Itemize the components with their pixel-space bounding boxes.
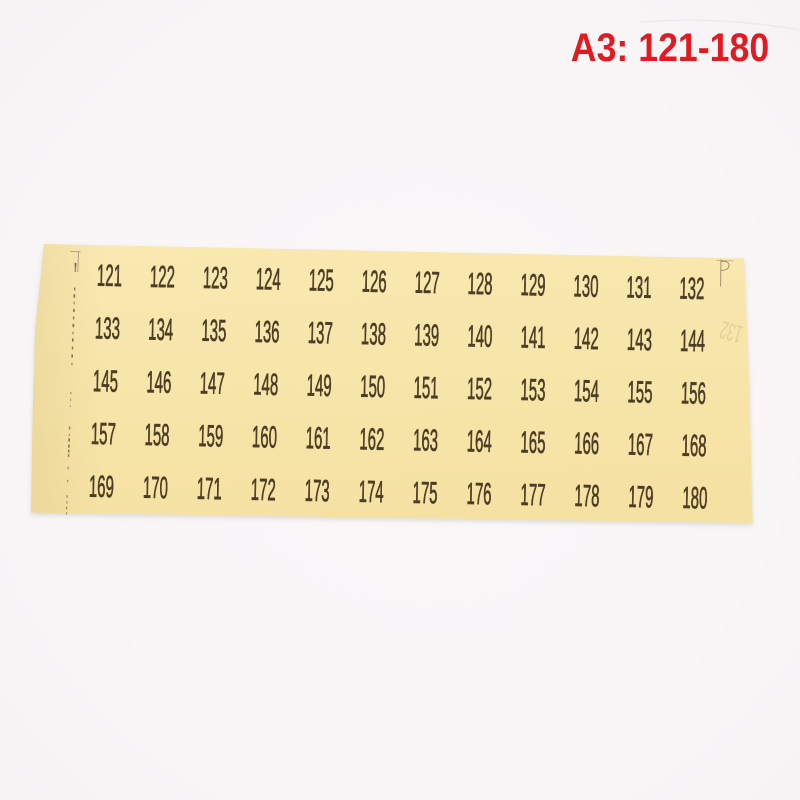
svg-text:178: 178 [574,479,600,513]
svg-text:124: 124 [255,262,281,296]
svg-text:156: 156 [681,376,707,410]
svg-text:170: 170 [143,471,169,505]
svg-text:162: 162 [359,422,385,456]
svg-text:128: 128 [467,267,493,301]
svg-text:177: 177 [520,478,546,512]
svg-text:150: 150 [360,370,386,404]
svg-text:136: 136 [254,315,280,349]
svg-text:171: 171 [196,472,222,506]
svg-text:175: 175 [412,476,438,510]
svg-text:153: 153 [520,373,546,407]
svg-text:130: 130 [573,269,599,303]
svg-text:126: 126 [361,265,387,299]
svg-text:165: 165 [520,425,546,459]
svg-text:155: 155 [627,375,653,409]
svg-text:163: 163 [413,423,439,457]
svg-text:176: 176 [466,477,492,511]
svg-text:173: 173 [304,474,330,508]
svg-text:127: 127 [414,266,440,300]
svg-text:164: 164 [466,424,492,458]
svg-text:133: 133 [95,311,121,345]
svg-text:148: 148 [253,367,279,401]
svg-text:147: 147 [199,366,225,400]
svg-text:135: 135 [201,314,227,348]
svg-text:137: 137 [307,316,333,350]
svg-text:169: 169 [89,470,115,504]
svg-text:129: 129 [520,268,546,302]
svg-text:A3: 121-180: A3: 121-180 [571,26,769,70]
svg-text:167: 167 [628,428,654,462]
svg-text:145: 145 [93,364,119,398]
svg-text:121: 121 [97,259,123,293]
svg-text:122: 122 [150,260,176,294]
svg-text:132: 132 [679,272,705,306]
svg-text:146: 146 [146,365,172,399]
svg-text:138: 138 [361,317,387,351]
svg-text:168: 168 [681,429,707,463]
svg-text:180: 180 [682,481,708,515]
svg-text:151: 151 [413,371,439,405]
svg-text:149: 149 [306,369,332,403]
svg-text:157: 157 [91,417,117,451]
svg-text:141: 141 [520,320,546,354]
svg-text:123: 123 [203,261,229,295]
svg-text:134: 134 [148,313,174,347]
svg-text:139: 139 [414,318,440,352]
svg-text:160: 160 [252,420,278,454]
svg-text:166: 166 [574,426,600,460]
svg-text:143: 143 [627,323,653,357]
svg-text:142: 142 [573,322,599,356]
svg-text:144: 144 [680,324,706,358]
svg-text:179: 179 [628,480,654,514]
svg-text:154: 154 [574,374,600,408]
svg-text:159: 159 [198,419,224,453]
svg-text:152: 152 [467,372,493,406]
svg-text:161: 161 [305,421,331,455]
svg-text:174: 174 [358,475,384,509]
svg-text:172: 172 [250,473,276,507]
svg-text:131: 131 [626,270,652,304]
svg-text:125: 125 [308,263,334,297]
svg-text:158: 158 [144,418,170,452]
svg-text:140: 140 [467,319,493,353]
